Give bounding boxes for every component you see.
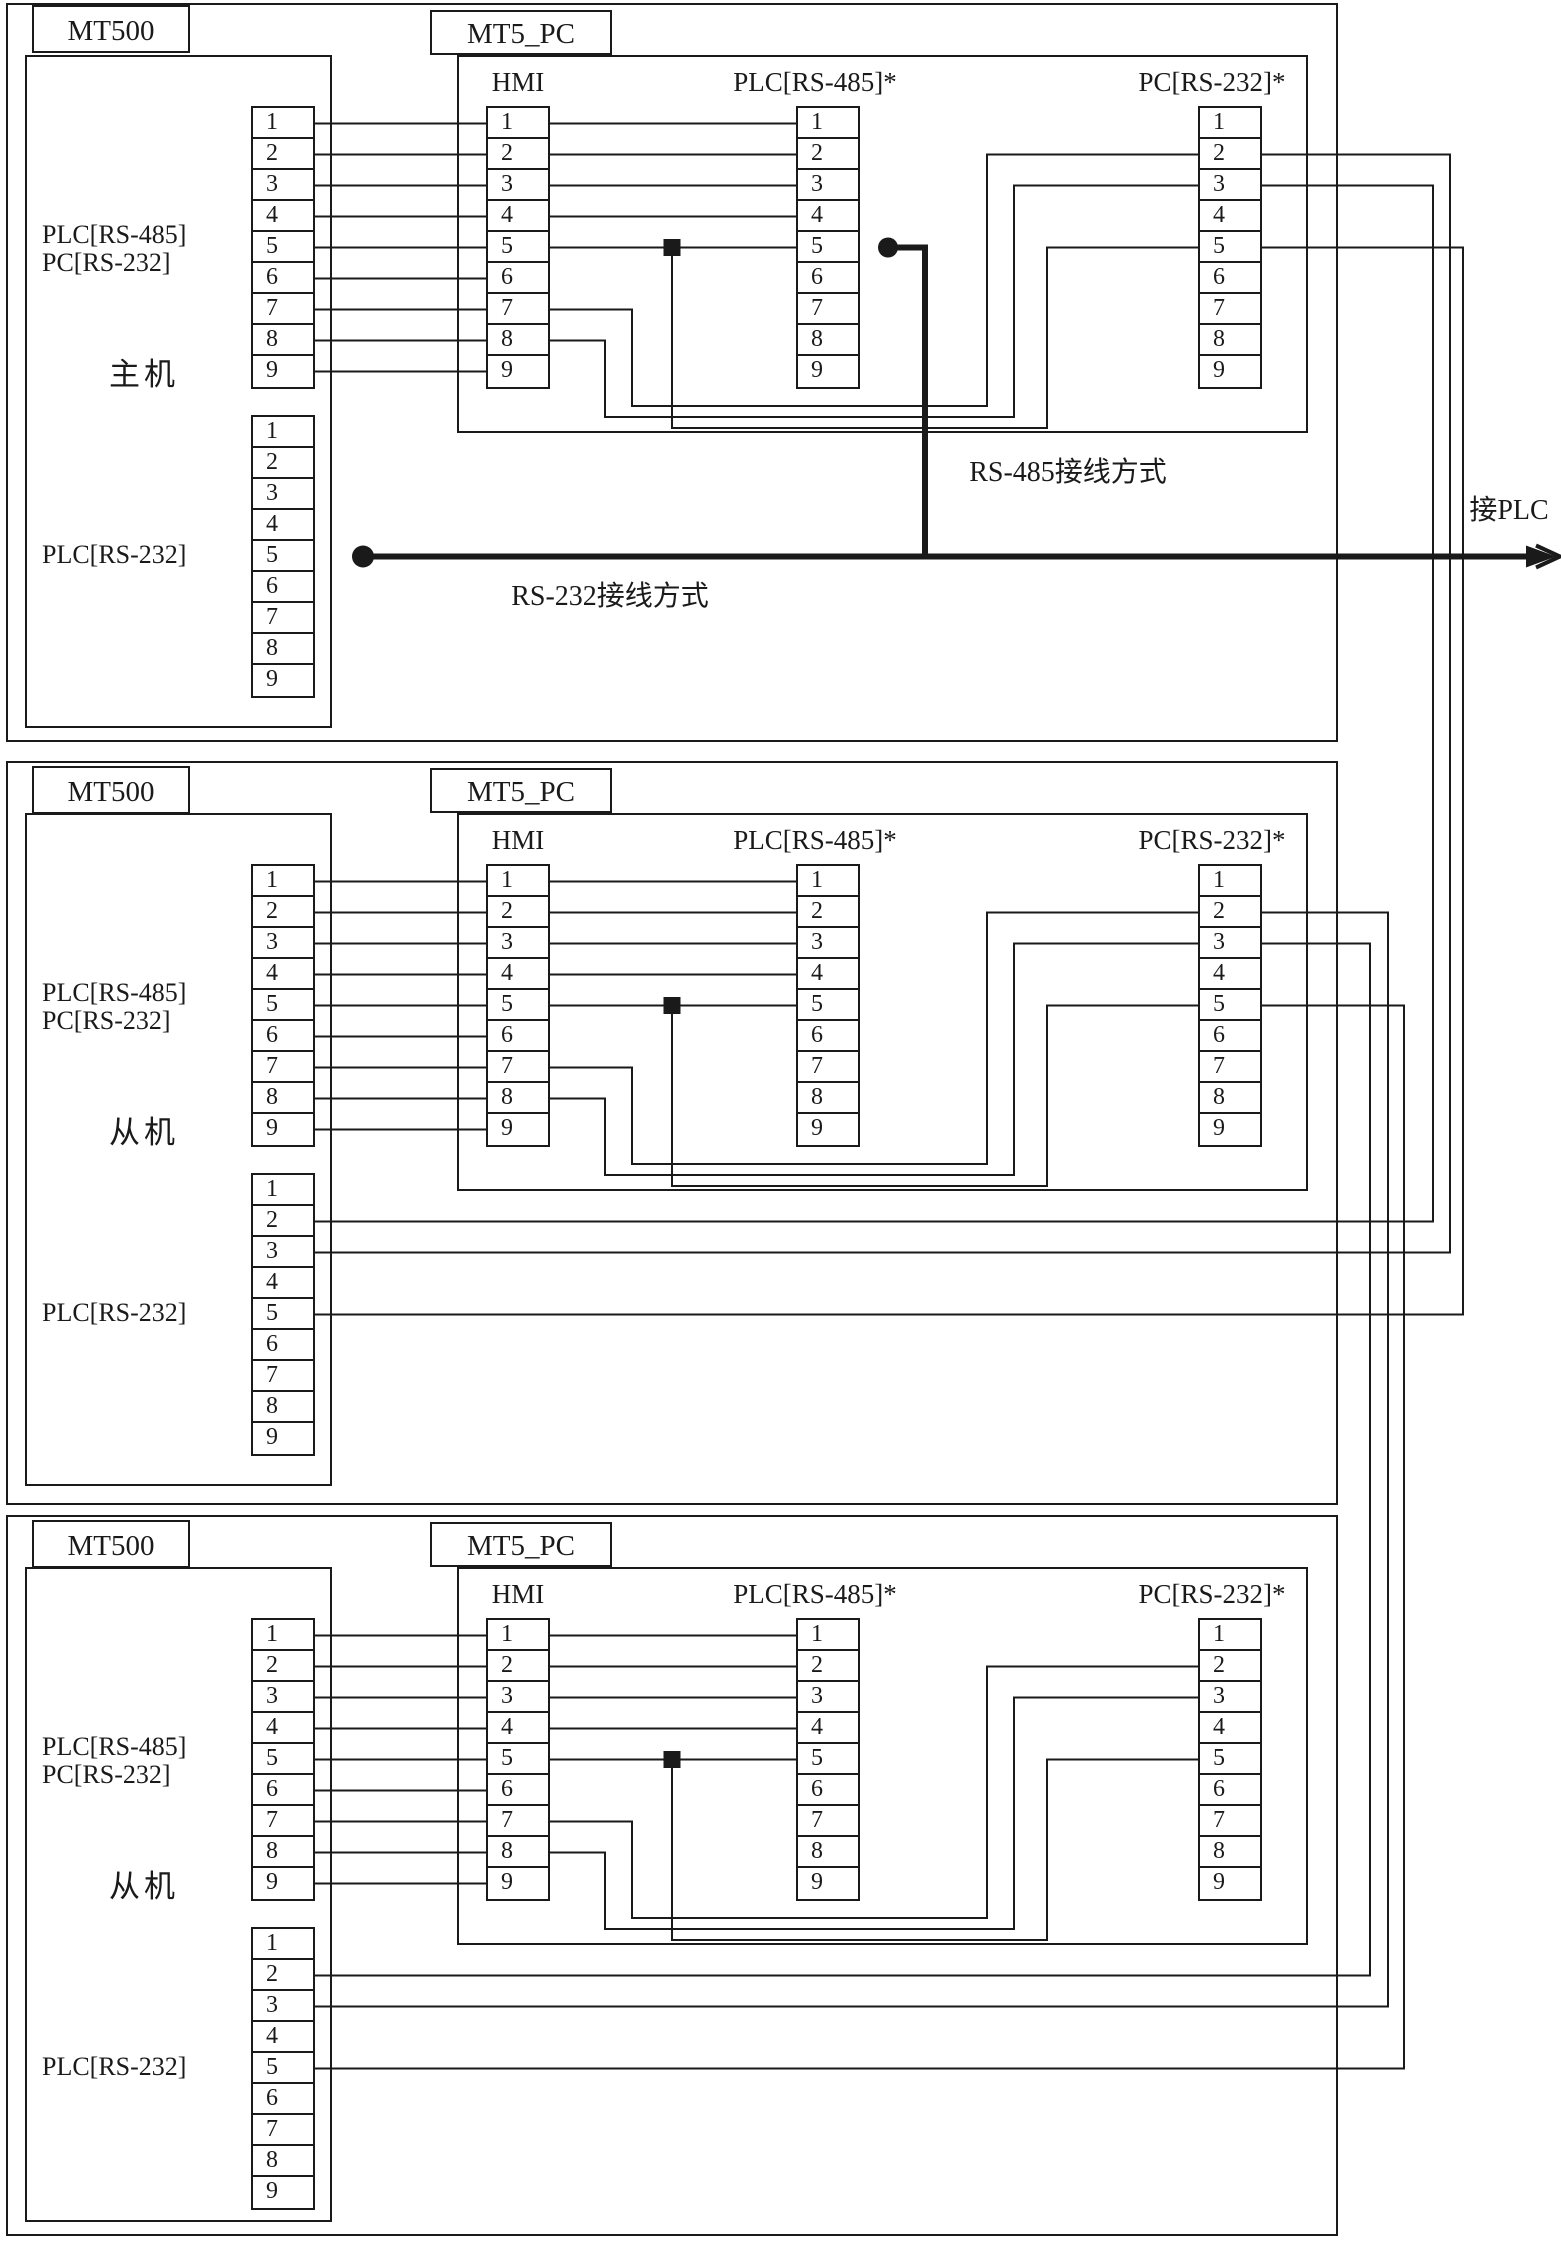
wiring-diagram: RS-485接线方式 RS-232接线方式 接PLC MT500MT5_PCPL…	[0, 0, 1561, 2241]
wiring-layer	[0, 0, 1561, 2241]
wire-chain-b1pc2-b2lower3	[313, 913, 1388, 2007]
wire-wrap-hmi8-pc3-2	[548, 1698, 1200, 1930]
gnd-junction-square-1	[664, 997, 681, 1014]
wire-wrap-hmi7-pc2-2	[548, 1667, 1200, 1919]
wire-wrap-hmi7-pc2-0	[548, 155, 1200, 407]
wire-wrap-gnd-pc5-1	[672, 1006, 1200, 1187]
wire-chain-b0pc2-b1lower3	[313, 155, 1450, 1253]
wire-wrap-hmi7-pc2-1	[548, 913, 1200, 1165]
gnd-junction-square-0	[664, 239, 681, 256]
rs485-bus	[888, 248, 925, 557]
wire-chain-b0pc5-b1lower5	[313, 248, 1463, 1315]
wire-wrap-hmi8-pc3-0	[548, 186, 1200, 418]
gnd-junction-square-2	[664, 1751, 681, 1768]
wire-wrap-hmi8-pc3-1	[548, 944, 1200, 1176]
wire-wrap-gnd-pc5-2	[672, 1760, 1200, 1941]
wire-wrap-gnd-pc5-0	[672, 248, 1200, 429]
